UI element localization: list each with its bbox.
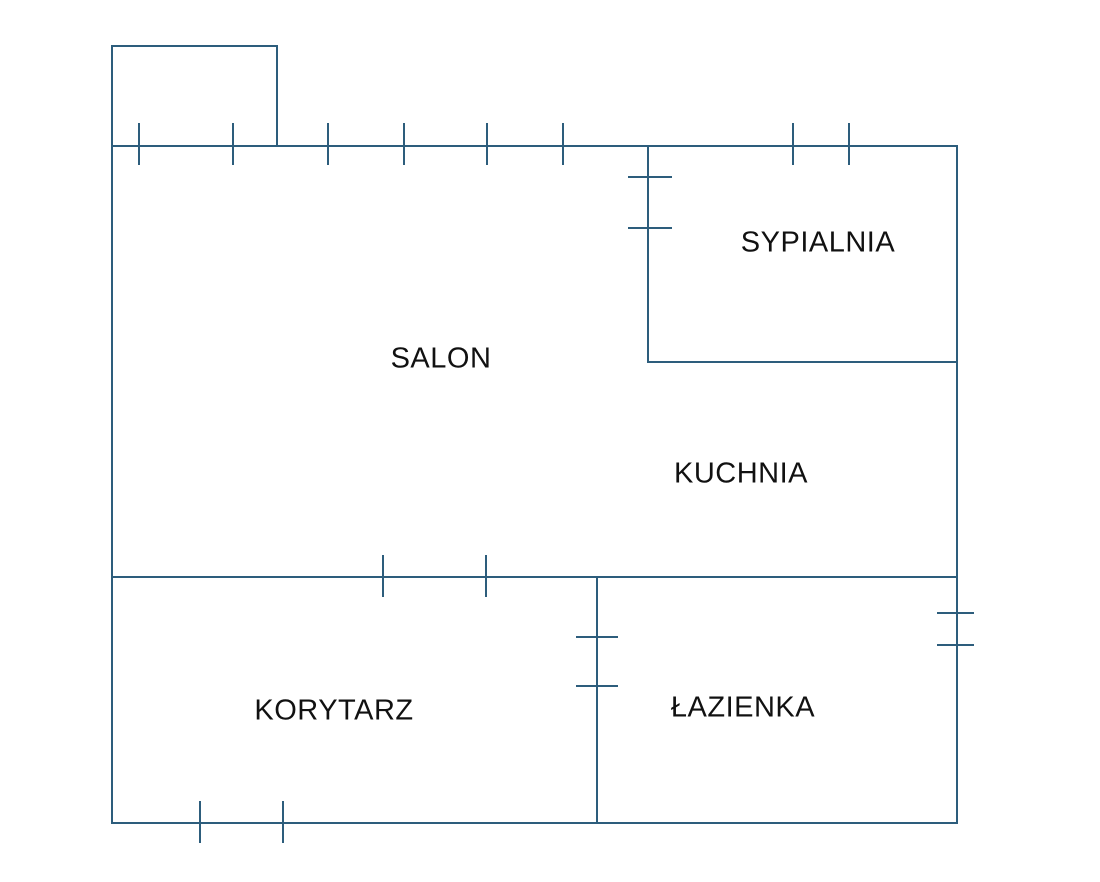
room-label-kuchnia: KUCHNIA — [674, 458, 808, 491]
room-label-sypialnia: SYPIALNIA — [741, 227, 895, 260]
window-tick — [382, 555, 384, 597]
window-tick — [138, 123, 140, 165]
wall-middle — [111, 576, 958, 578]
window-tick — [486, 123, 488, 165]
window-tick — [282, 801, 284, 843]
wall-outer-right — [956, 145, 958, 824]
room-label-korytarz: KORYTARZ — [254, 695, 413, 728]
window-tick — [562, 123, 564, 165]
window-tick — [848, 123, 850, 165]
wall-outer-bottom — [111, 822, 958, 824]
floor-plan: SALON SYPIALNIA KUCHNIA KORYTARZ ŁAZIENK… — [0, 0, 1100, 882]
window-tick — [628, 176, 672, 178]
window-tick — [792, 123, 794, 165]
wall-balcony-left — [111, 45, 113, 145]
window-tick — [199, 801, 201, 843]
room-label-lazienka: ŁAZIENKA — [671, 692, 815, 725]
wall-balcony-right — [276, 45, 278, 145]
wall-balcony-top — [111, 45, 278, 47]
window-tick — [628, 227, 672, 229]
window-tick — [327, 123, 329, 165]
window-tick — [576, 636, 618, 638]
room-label-salon: SALON — [391, 343, 492, 376]
window-tick — [485, 555, 487, 597]
window-tick — [576, 685, 618, 687]
wall-hall-divider — [596, 576, 598, 824]
wall-outer-left — [111, 145, 113, 824]
wall-bedroom-bottom — [647, 361, 958, 363]
window-tick — [232, 123, 234, 165]
wall-outer-top — [111, 145, 958, 147]
window-tick — [403, 123, 405, 165]
window-tick — [937, 612, 974, 614]
window-tick — [937, 644, 974, 646]
